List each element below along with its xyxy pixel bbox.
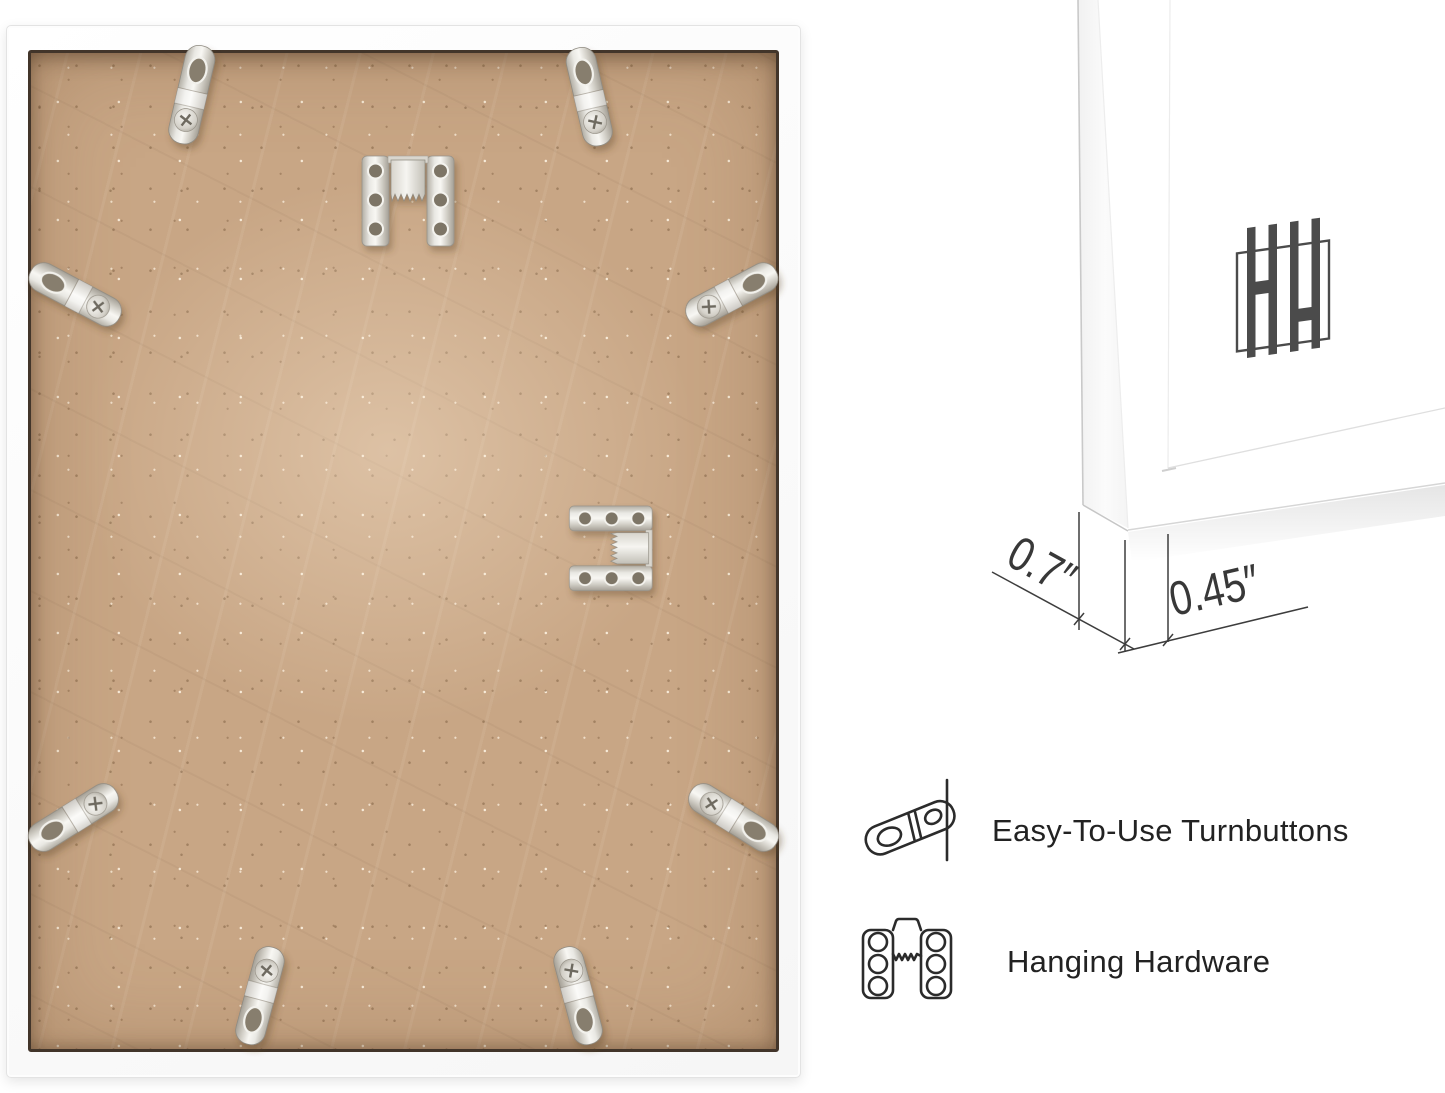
frame-corner-illustration: 0.7″ 0.45″ [960,0,1445,680]
feature-label-hanging-hardware: Hanging Hardware [1007,944,1270,980]
sawtooth-hanger-icon [853,916,963,1008]
dimension-label-depth: 0.7″ [999,526,1085,606]
turnbutton-icon [853,776,958,886]
feature-label-turnbuttons: Easy-To-Use Turnbuttons [992,813,1349,849]
mdf-board [28,50,779,1052]
feature-hanging-hardware: Hanging Hardware [853,903,1270,1021]
product-infographic: 0.7″ 0.45″ Easy-To-Use Turnbuttons Hangi… [0,0,1445,1093]
frame-back-photo [6,25,801,1078]
feature-turnbuttons: Easy-To-Use Turnbuttons [853,775,1349,887]
dimension-label-face: 0.45″ [1164,554,1264,627]
